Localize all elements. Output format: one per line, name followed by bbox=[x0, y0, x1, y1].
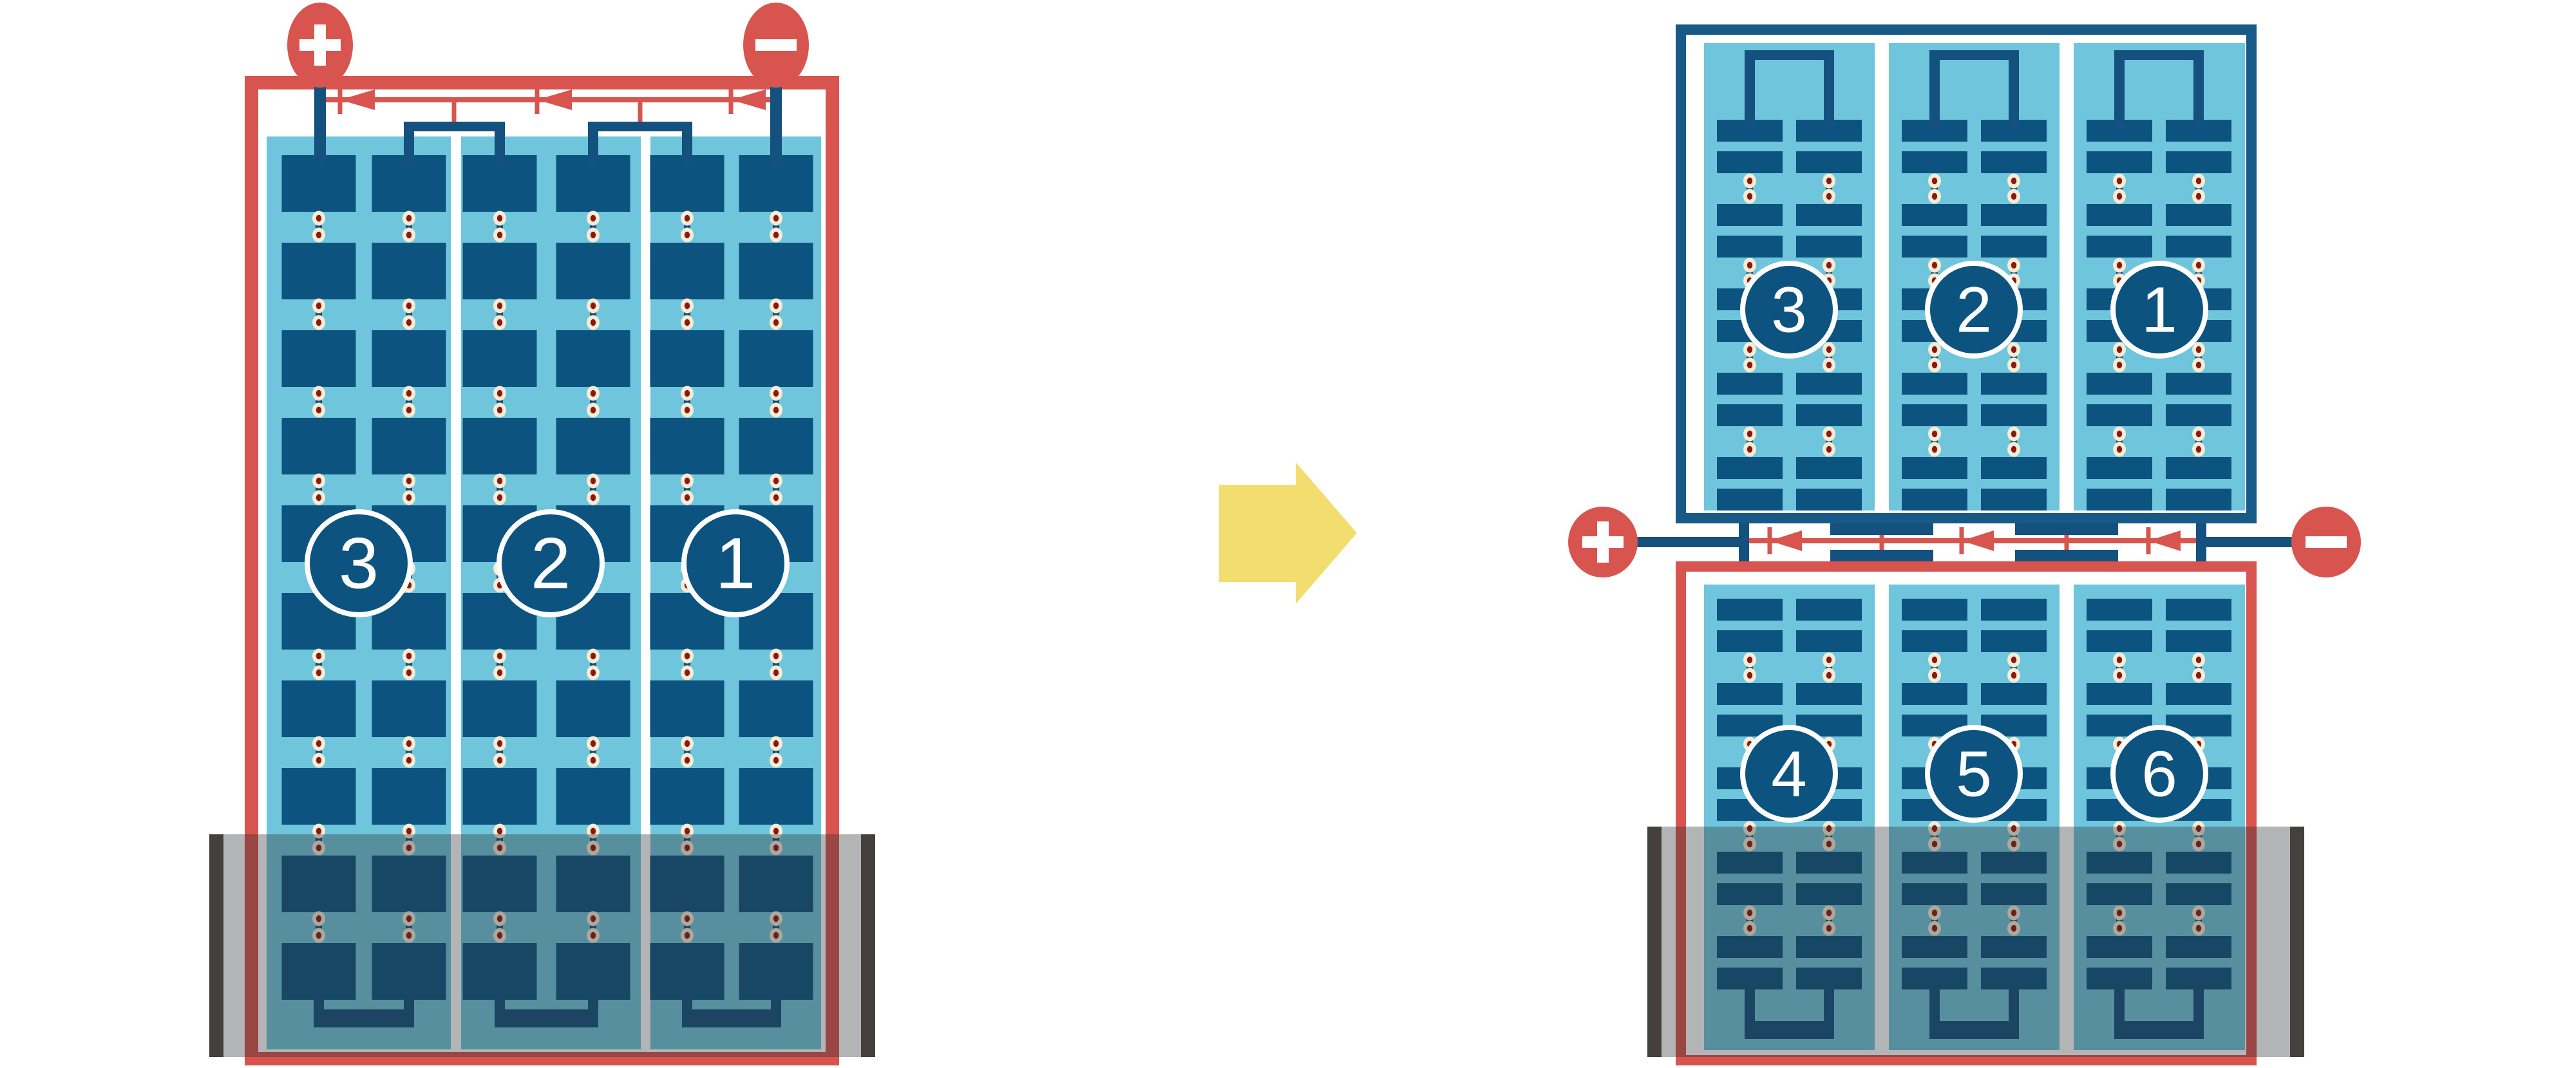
flood-wall-icon-right bbox=[861, 834, 875, 1057]
rivet-core bbox=[591, 215, 596, 221]
rivet-core bbox=[685, 653, 690, 659]
flood-overlay bbox=[223, 834, 861, 1057]
rivet-core bbox=[685, 757, 690, 764]
rivet-core bbox=[685, 478, 690, 484]
diagram-canvas: 321321456 bbox=[0, 0, 2576, 1068]
solar-cell bbox=[739, 768, 813, 825]
solar-half-cell bbox=[2166, 204, 2231, 226]
rivet-core bbox=[1747, 446, 1752, 453]
rivet-core bbox=[685, 303, 690, 309]
plus-glyph-v bbox=[1597, 521, 1609, 563]
left-module: 321 bbox=[209, 3, 875, 1059]
string-number-badge-2: 2 bbox=[1927, 263, 2020, 356]
solar-half-cell bbox=[2166, 489, 2231, 511]
rivet-core bbox=[497, 390, 502, 397]
solar-half-cell bbox=[2166, 151, 2231, 173]
solar-cell bbox=[739, 330, 813, 387]
rivet-core bbox=[773, 653, 779, 659]
rivet-core bbox=[497, 494, 502, 501]
solar-half-cell bbox=[1902, 489, 1967, 511]
rivet-core bbox=[316, 670, 321, 676]
solar-half-cell bbox=[1717, 404, 1783, 426]
rivet-core bbox=[1747, 178, 1752, 184]
string-number-badge-5: 5 bbox=[1927, 727, 2020, 820]
junction-tab-top bbox=[1830, 523, 1933, 535]
junction-tab-bottom bbox=[1830, 550, 1933, 561]
bridge-leg bbox=[2114, 50, 2125, 130]
solar-half-cell bbox=[2166, 630, 2231, 652]
solar-half-cell bbox=[1717, 373, 1783, 395]
solar-cell bbox=[463, 418, 537, 474]
rivet-core bbox=[1826, 346, 1832, 353]
bridge-leg bbox=[1929, 50, 1940, 130]
rivet-core bbox=[1932, 672, 1937, 679]
rivet-core bbox=[1826, 362, 1832, 368]
pv-module-wiring-diagram: 321321456 bbox=[0, 0, 2576, 1068]
rivet-core bbox=[316, 740, 321, 747]
rivet-core bbox=[2196, 446, 2201, 453]
rivet-core bbox=[1932, 362, 1937, 368]
badge-label: 3 bbox=[339, 523, 379, 604]
rivet-core bbox=[685, 215, 690, 221]
rivet-core bbox=[2196, 431, 2201, 437]
solar-half-cell bbox=[1981, 489, 2047, 511]
rivet-core bbox=[1932, 178, 1937, 184]
solar-half-cell bbox=[1796, 489, 1862, 511]
badge-label: 1 bbox=[2141, 274, 2177, 346]
rivet-core bbox=[2011, 193, 2016, 200]
rivet-core bbox=[316, 757, 321, 764]
rivet-core bbox=[2196, 193, 2201, 200]
solar-cell bbox=[372, 680, 446, 737]
rivet-core bbox=[406, 670, 412, 676]
rivet-core bbox=[2117, 657, 2122, 663]
plus-glyph-v bbox=[314, 24, 326, 66]
rivet-core bbox=[2117, 431, 2122, 437]
bridge-leg bbox=[1824, 50, 1834, 130]
rivet-core bbox=[316, 390, 321, 397]
rivet-core bbox=[591, 478, 596, 484]
rivet-core bbox=[591, 390, 596, 397]
rivet-core bbox=[406, 757, 412, 764]
rivet-core bbox=[773, 828, 779, 834]
rivet-core bbox=[406, 215, 412, 221]
solar-half-cell bbox=[2087, 404, 2152, 426]
rivet-core bbox=[497, 319, 502, 326]
rivet-core bbox=[773, 478, 779, 484]
string-number-badge-6: 6 bbox=[2113, 727, 2206, 820]
rivet-core bbox=[406, 828, 412, 834]
solar-half-cell bbox=[1796, 630, 1862, 652]
rivet-core bbox=[497, 478, 502, 484]
junction-tab-top bbox=[2015, 523, 2118, 535]
solar-half-cell bbox=[2087, 373, 2152, 395]
string-number-badge-1: 1 bbox=[684, 512, 787, 615]
minus-terminal-wire bbox=[2206, 537, 2294, 547]
rivet-core bbox=[2011, 362, 2016, 368]
rivet-core bbox=[1747, 262, 1752, 268]
solar-half-cell bbox=[1717, 599, 1783, 621]
solar-half-cell bbox=[1902, 683, 1967, 705]
solar-cell bbox=[650, 330, 724, 387]
rivet-core bbox=[406, 653, 412, 659]
solar-half-cell bbox=[1981, 151, 2047, 173]
solar-half-cell bbox=[2087, 599, 2152, 621]
solar-half-cell bbox=[2166, 373, 2231, 395]
rivet-core bbox=[497, 215, 502, 221]
plus-terminal-wire bbox=[1636, 537, 1740, 547]
solar-half-cell bbox=[1796, 151, 1862, 173]
solar-cell bbox=[463, 768, 537, 825]
rivet-core bbox=[497, 828, 502, 834]
flood-wall-icon-right bbox=[2290, 827, 2304, 1057]
flood-wall-icon-left bbox=[1647, 827, 1662, 1057]
junction-vbar-left bbox=[1739, 523, 1749, 561]
rivet-core bbox=[773, 232, 779, 238]
solar-half-cell bbox=[1902, 236, 1967, 258]
rivet-core bbox=[685, 407, 690, 413]
rivet-core bbox=[1932, 446, 1937, 453]
rivet-core bbox=[1826, 672, 1832, 679]
bridge-leg bbox=[2009, 50, 2019, 130]
solar-half-cell bbox=[2087, 489, 2152, 511]
solar-cell bbox=[739, 680, 813, 737]
rivet-core bbox=[2196, 346, 2201, 353]
plus-terminal-wire bbox=[314, 85, 326, 166]
bridge-leg bbox=[682, 122, 692, 167]
string-number-badge-1: 1 bbox=[2113, 263, 2206, 356]
rivet-core bbox=[1932, 262, 1937, 268]
solar-cell bbox=[556, 330, 630, 387]
solar-half-cell bbox=[1717, 236, 1783, 258]
bridge-bar bbox=[1929, 50, 2019, 60]
solar-half-cell bbox=[1981, 373, 2047, 395]
rivet-core bbox=[2196, 178, 2201, 184]
rivet-core bbox=[497, 740, 502, 747]
rivet-core bbox=[1747, 431, 1752, 437]
solar-half-cell bbox=[2087, 151, 2152, 173]
rivet-core bbox=[1747, 193, 1752, 200]
solar-half-cell bbox=[1796, 599, 1862, 621]
string-number-badge-2: 2 bbox=[499, 512, 602, 615]
bridge-leg bbox=[1745, 50, 1755, 130]
rivet-core bbox=[497, 653, 502, 659]
rivet-core bbox=[591, 740, 596, 747]
flood-wall-icon-left bbox=[209, 834, 223, 1057]
rivet-core bbox=[316, 215, 321, 221]
solar-half-cell bbox=[1717, 204, 1783, 226]
solar-half-cell bbox=[1981, 630, 2047, 652]
rivet-core bbox=[1747, 672, 1752, 679]
bridge-bar bbox=[588, 122, 692, 131]
rivet-core bbox=[591, 303, 596, 309]
bridge-leg bbox=[404, 122, 414, 167]
rivet-core bbox=[406, 407, 412, 413]
bridge-bar bbox=[1745, 50, 1834, 60]
solar-cell bbox=[372, 418, 446, 474]
solar-half-cell bbox=[1717, 683, 1783, 705]
rivet-core bbox=[1932, 193, 1937, 200]
solar-cell bbox=[282, 680, 356, 737]
solar-half-cell bbox=[1902, 151, 1967, 173]
rivet-core bbox=[2196, 262, 2201, 268]
rivet-core bbox=[591, 757, 596, 764]
solar-cell bbox=[463, 680, 537, 737]
rivet-core bbox=[591, 494, 596, 501]
rivet-core bbox=[2117, 672, 2122, 679]
solar-half-cell bbox=[2166, 404, 2231, 426]
solar-cell bbox=[282, 418, 356, 474]
rivet-core bbox=[685, 319, 690, 326]
solar-cell bbox=[556, 680, 630, 737]
rivet-core bbox=[685, 828, 690, 834]
solar-cell bbox=[463, 330, 537, 387]
solar-half-cell bbox=[1796, 373, 1862, 395]
solar-cell bbox=[372, 768, 446, 825]
solar-half-cell bbox=[1902, 404, 1967, 426]
rivet-core bbox=[773, 215, 779, 221]
solar-half-cell bbox=[1902, 373, 1967, 395]
rivet-core bbox=[316, 303, 321, 309]
solar-cell bbox=[650, 243, 724, 299]
rivet-core bbox=[685, 670, 690, 676]
rivet-core bbox=[591, 407, 596, 413]
rivet-core bbox=[2117, 446, 2122, 453]
flood-overlay bbox=[1662, 827, 2290, 1057]
rivet-core bbox=[773, 670, 779, 676]
solar-half-cell bbox=[1796, 236, 1862, 258]
minus-glyph bbox=[2306, 536, 2347, 548]
bridge-leg bbox=[495, 122, 505, 167]
rivet-core bbox=[685, 740, 690, 747]
rivet-core bbox=[773, 740, 779, 747]
solar-cell bbox=[463, 243, 537, 299]
bridge-bar bbox=[404, 122, 505, 131]
plus-terminal-icon bbox=[287, 3, 353, 88]
rivet-core bbox=[2117, 262, 2122, 268]
rivet-core bbox=[1826, 262, 1832, 268]
solar-half-cell bbox=[1981, 457, 2047, 479]
solar-cell bbox=[739, 418, 813, 474]
solar-half-cell bbox=[1796, 457, 1862, 479]
solar-cell bbox=[282, 330, 356, 387]
bridge-bar bbox=[2114, 50, 2204, 60]
rivet-core bbox=[591, 828, 596, 834]
solar-half-cell bbox=[1717, 151, 1783, 173]
badge-label: 3 bbox=[1771, 274, 1807, 346]
rivet-core bbox=[2117, 193, 2122, 200]
solar-cell bbox=[739, 243, 813, 299]
solar-half-cell bbox=[1717, 457, 1783, 479]
badge-label: 1 bbox=[715, 523, 755, 604]
rivet-core bbox=[2117, 346, 2122, 353]
rivet-core bbox=[2196, 362, 2201, 368]
solar-cell bbox=[556, 418, 630, 474]
solar-half-cell bbox=[2087, 683, 2152, 705]
rivet-core bbox=[316, 828, 321, 834]
solar-half-cell bbox=[1796, 404, 1862, 426]
string-number-badge-3: 3 bbox=[307, 512, 410, 615]
rivet-core bbox=[773, 494, 779, 501]
rivet-core bbox=[1747, 346, 1752, 353]
rivet-core bbox=[1826, 446, 1832, 453]
bridge-leg bbox=[588, 122, 598, 167]
solar-half-cell bbox=[2166, 599, 2231, 621]
solar-half-cell bbox=[1902, 204, 1967, 226]
solar-half-cell bbox=[1902, 599, 1967, 621]
minus-terminal-wire bbox=[770, 85, 782, 166]
solar-half-cell bbox=[1902, 630, 1967, 652]
rivet-core bbox=[497, 670, 502, 676]
rivet-core bbox=[1747, 657, 1752, 663]
rivet-core bbox=[2117, 362, 2122, 368]
badge-label: 4 bbox=[1771, 738, 1807, 810]
rivet-core bbox=[316, 653, 321, 659]
rivet-core bbox=[406, 232, 412, 238]
string-number-badge-4: 4 bbox=[1743, 727, 1835, 820]
rivet-core bbox=[1826, 657, 1832, 663]
rivet-core bbox=[591, 319, 596, 326]
rivet-core bbox=[773, 757, 779, 764]
rivet-core bbox=[1747, 362, 1752, 368]
rivet-core bbox=[1932, 431, 1937, 437]
solar-cell bbox=[282, 768, 356, 825]
rivet-core bbox=[1826, 178, 1832, 184]
solar-half-cell bbox=[1981, 599, 2047, 621]
junction-vbar-right bbox=[2196, 523, 2206, 561]
solar-half-cell bbox=[1981, 204, 2047, 226]
rivet-core bbox=[1932, 346, 1937, 353]
solar-half-cell bbox=[2087, 236, 2152, 258]
solar-half-cell bbox=[1796, 683, 1862, 705]
rivet-core bbox=[316, 478, 321, 484]
rivet-core bbox=[773, 319, 779, 326]
rivet-core bbox=[406, 390, 412, 397]
rivet-core bbox=[316, 232, 321, 238]
solar-cell bbox=[650, 680, 724, 737]
rivet-core bbox=[1826, 431, 1832, 437]
solar-half-cell bbox=[1981, 404, 2047, 426]
rivet-core bbox=[2011, 178, 2016, 184]
rivet-core bbox=[406, 319, 412, 326]
rivet-core bbox=[591, 653, 596, 659]
solar-cell bbox=[650, 768, 724, 825]
rivet-core bbox=[316, 407, 321, 413]
badge-label: 6 bbox=[2141, 738, 2177, 810]
rivet-core bbox=[2011, 346, 2016, 353]
solar-half-cell bbox=[1796, 204, 1862, 226]
solar-half-cell bbox=[2087, 630, 2152, 652]
rivet-core bbox=[685, 390, 690, 397]
rivet-core bbox=[1826, 193, 1832, 200]
solar-cell bbox=[282, 243, 356, 299]
badge-label: 2 bbox=[1956, 274, 1992, 346]
solar-half-cell bbox=[2087, 204, 2152, 226]
solar-half-cell bbox=[1981, 683, 2047, 705]
rivet-core bbox=[2011, 446, 2016, 453]
solar-cell bbox=[556, 768, 630, 825]
rivet-core bbox=[2196, 672, 2201, 679]
solar-half-cell bbox=[1902, 457, 1967, 479]
minus-glyph bbox=[755, 39, 797, 51]
rivet-core bbox=[773, 407, 779, 413]
minus-terminal-icon bbox=[2291, 507, 2361, 577]
solar-half-cell bbox=[2166, 683, 2231, 705]
minus-terminal-icon bbox=[743, 3, 809, 88]
rivet-core bbox=[591, 232, 596, 238]
solar-half-cell bbox=[1717, 489, 1783, 511]
badge-label: 2 bbox=[531, 523, 571, 604]
rivet-core bbox=[406, 303, 412, 309]
badge-label: 5 bbox=[1956, 738, 1992, 810]
rivet-core bbox=[497, 757, 502, 764]
rivet-core bbox=[497, 303, 502, 309]
rivet-core bbox=[406, 494, 412, 501]
solar-half-cell bbox=[2166, 236, 2231, 258]
rivet-core bbox=[2011, 672, 2016, 679]
rivet-core bbox=[406, 478, 412, 484]
bridge-leg bbox=[2193, 50, 2204, 130]
solar-half-cell bbox=[2166, 457, 2231, 479]
rivet-core bbox=[2117, 178, 2122, 184]
rivet-core bbox=[591, 670, 596, 676]
rivet-core bbox=[497, 407, 502, 413]
solar-half-cell bbox=[2087, 457, 2152, 479]
junction-tab-bottom bbox=[2015, 550, 2118, 561]
rivet-core bbox=[316, 494, 321, 501]
solar-cell bbox=[372, 330, 446, 387]
solar-cell bbox=[556, 243, 630, 299]
rivet-core bbox=[316, 319, 321, 326]
rivet-core bbox=[773, 390, 779, 397]
rivet-core bbox=[685, 232, 690, 238]
solar-half-cell bbox=[1981, 236, 2047, 258]
solar-half-cell bbox=[1717, 630, 1783, 652]
rivet-core bbox=[2011, 262, 2016, 268]
rivet-core bbox=[2196, 657, 2201, 663]
solar-cell bbox=[650, 418, 724, 474]
rivet-core bbox=[406, 740, 412, 747]
rivet-core bbox=[1932, 657, 1937, 663]
rivet-core bbox=[497, 232, 502, 238]
rivet-core bbox=[2011, 431, 2016, 437]
string-number-badge-3: 3 bbox=[1743, 263, 1835, 356]
solar-cell bbox=[372, 243, 446, 299]
rivet-core bbox=[773, 303, 779, 309]
plus-terminal-icon bbox=[1568, 507, 1638, 577]
rivet-core bbox=[2011, 657, 2016, 663]
rivet-core bbox=[685, 494, 690, 501]
